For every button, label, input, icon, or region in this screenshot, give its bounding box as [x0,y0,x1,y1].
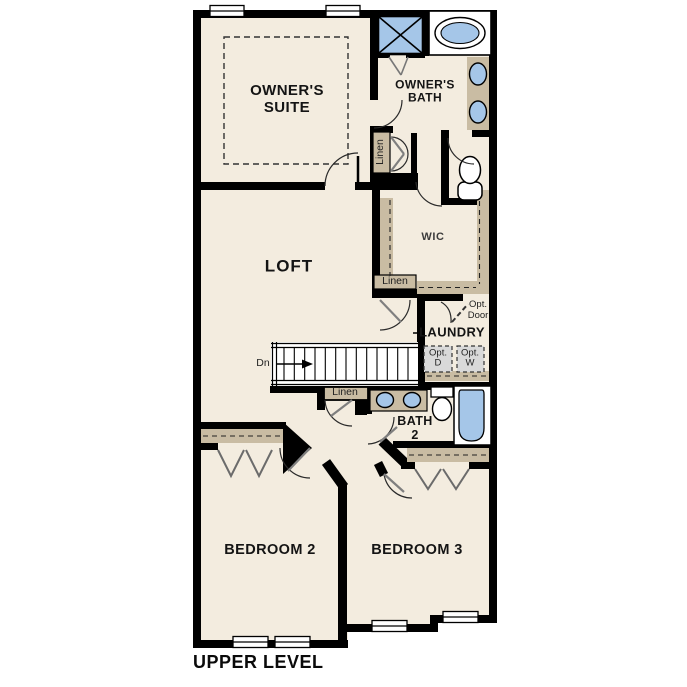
window-icon [275,637,310,648]
sink-icon [470,63,487,85]
bathtub-icon [429,11,491,55]
bath2-label: BATH 2 [397,414,432,442]
linen-lower-label: Linen [332,387,358,399]
window-icon [233,637,268,648]
owners-toilet-icon [458,157,482,201]
wic-right-shelf [477,190,489,286]
wic-bottom-shelf [417,281,489,294]
sink-icon [377,393,394,408]
linen-mid-label: Linen [382,276,408,288]
owners-bath-label: OWNER'S BATH [395,79,455,106]
opt-dryer-label: Opt. D [429,349,447,370]
bath2-toilet-icon [431,387,453,421]
window-icon [443,612,478,623]
stairs-down-label: Dn [256,358,269,370]
sink-icon [470,101,487,123]
wic-label: WIC [421,231,444,243]
opt-door-label: Opt. Door [468,300,489,322]
wic-left-shelf [380,198,393,277]
owners-suite-label: OWNER'S SUITE [250,83,324,117]
floor-plan-drawing [0,0,687,687]
linen-upper-label: Linen [375,139,387,165]
window-icon [372,621,407,632]
bedroom3-label: BEDROOM 3 [371,542,462,558]
bedroom2-label: BEDROOM 2 [224,542,315,558]
bath2-tub-icon [454,386,491,445]
opt-washer-label: Opt. W [461,349,479,370]
window-icon [326,6,360,17]
loft-label: LOFT [265,256,313,275]
floor-plan-page: OWNER'S SUITE OWNER'S BATH LOFT WIC LAUN… [0,0,687,687]
staircase [271,342,418,386]
plan-caption: UPPER LEVEL [193,652,324,673]
laundry-label: LAUNDRY [419,326,485,341]
sink-icon [404,393,421,408]
window-icon [210,6,244,17]
